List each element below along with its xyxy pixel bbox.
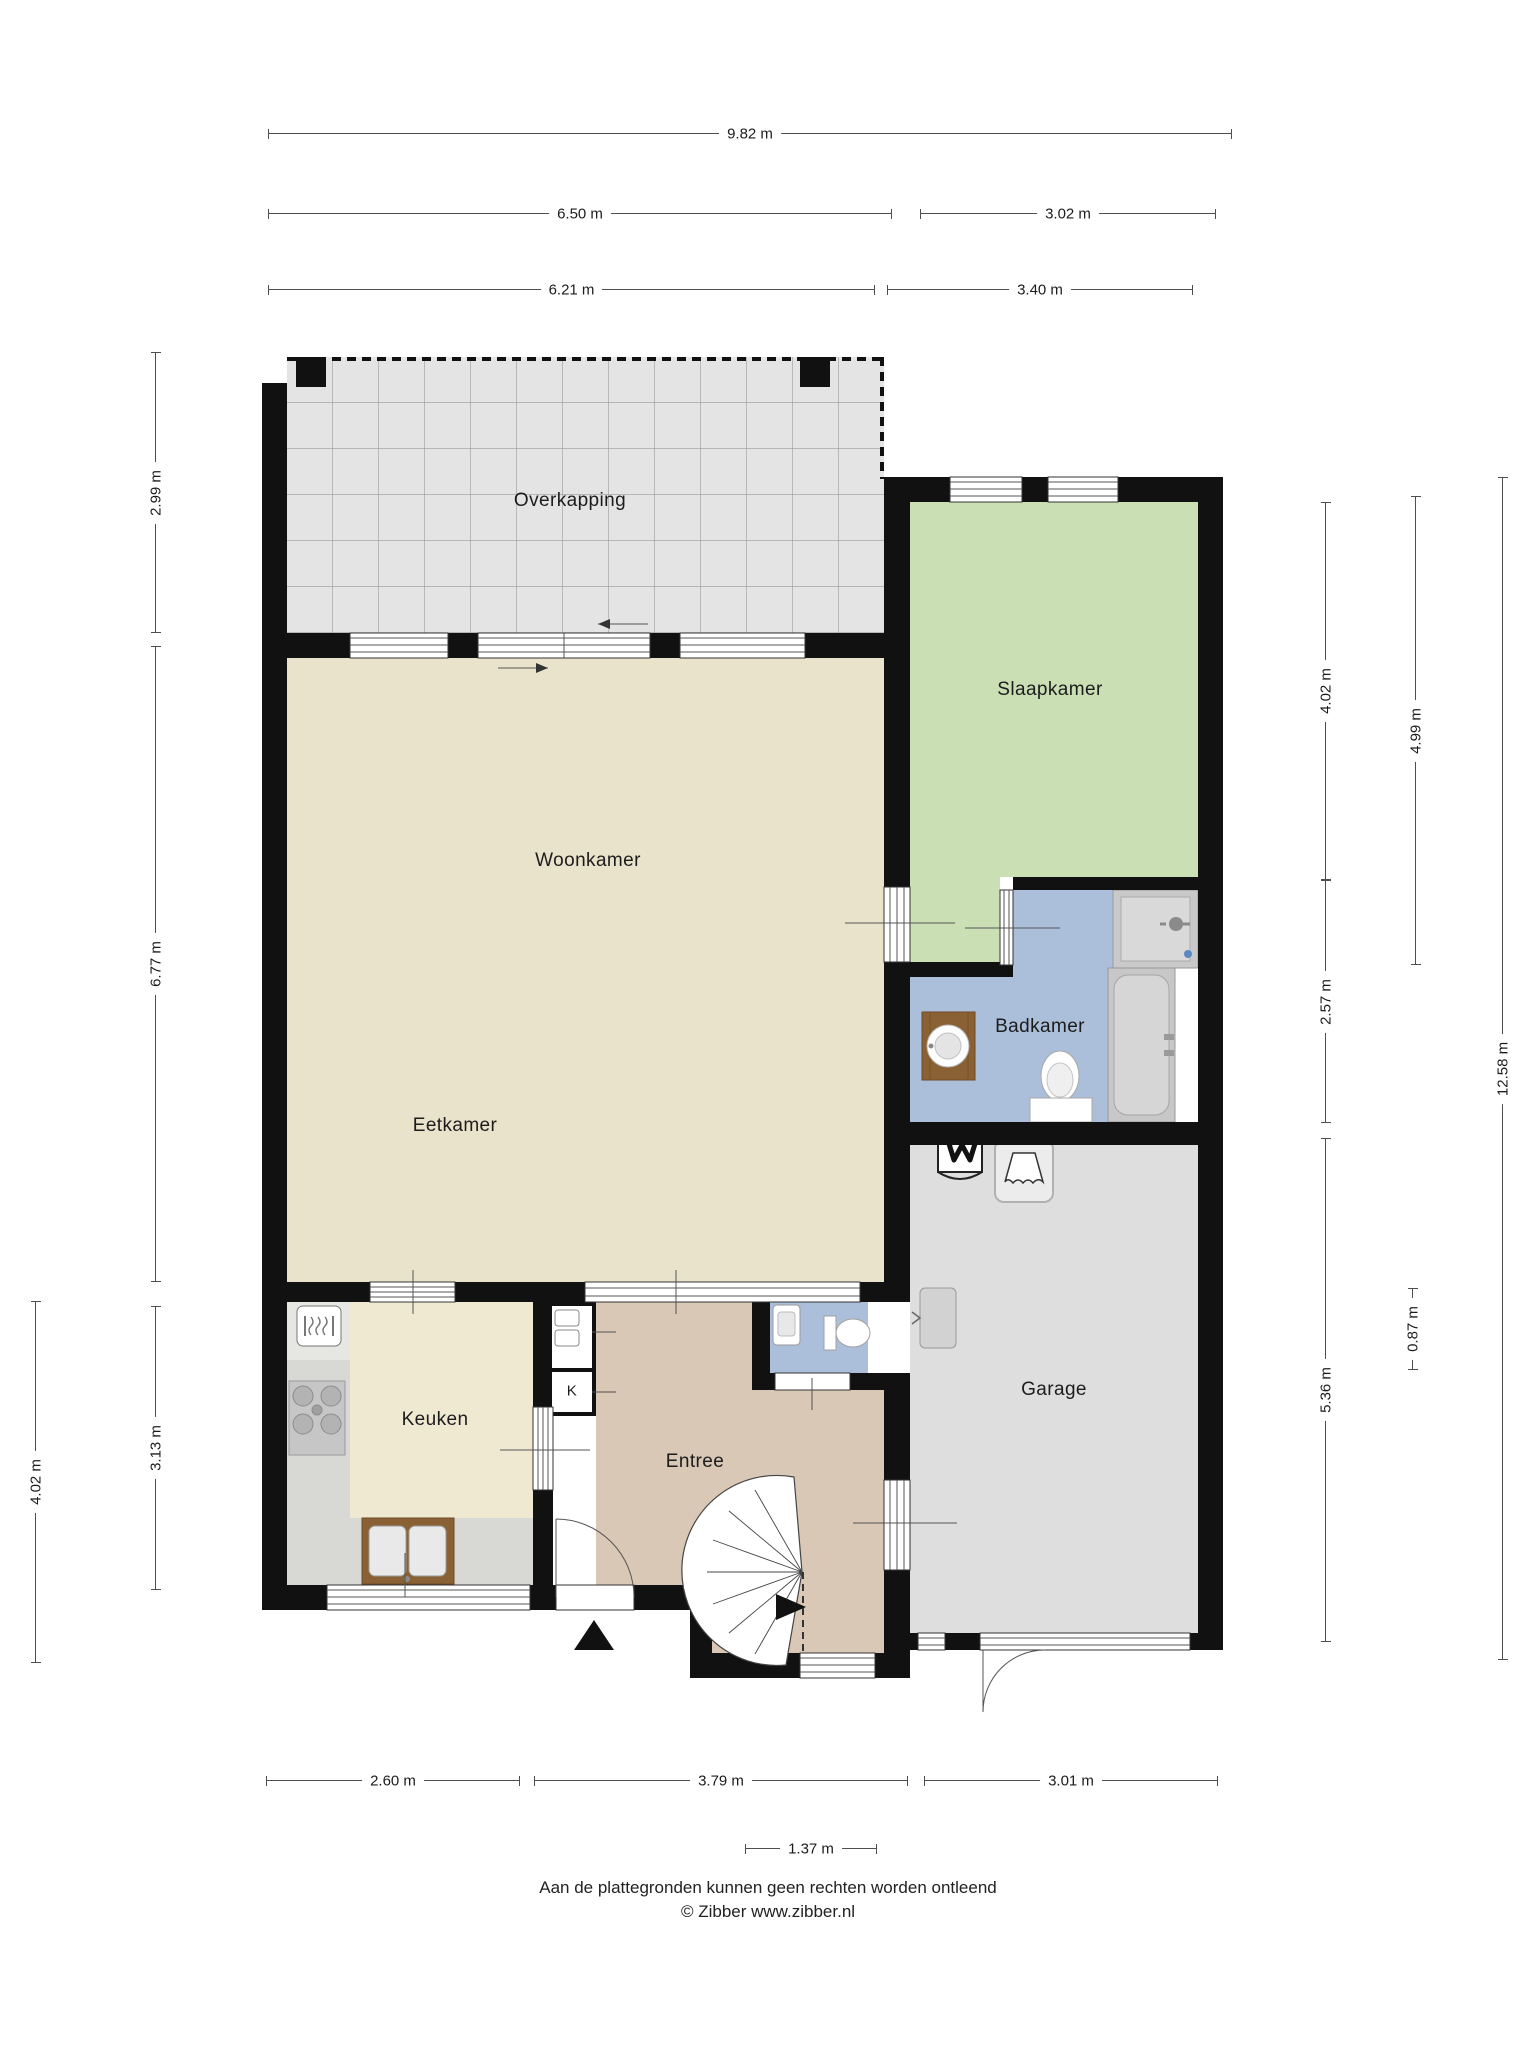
dim-width-right: 3.02 m [920, 213, 1216, 214]
dim-terrace-depth: 2.99 m [155, 352, 156, 633]
glazed-door [884, 887, 910, 962]
room-label-garage: Garage [1021, 1379, 1087, 1401]
window [350, 633, 448, 658]
room-label-keuken: Keuken [402, 1409, 469, 1431]
garage-pass-door-swing [983, 1650, 1045, 1712]
wc-door-strip [868, 1302, 884, 1373]
dim-small-right: 0.87 m [1412, 1288, 1413, 1370]
shower-mixer-icon [1169, 917, 1183, 931]
dim-living-depth: 6.77 m [155, 646, 156, 1282]
window [680, 633, 805, 658]
disclaimer-text: Aan de plattegronden kunnen geen rechten… [0, 1878, 1536, 1898]
bathroom-sink [922, 1012, 975, 1080]
entrance-triangle-icon [574, 1620, 614, 1650]
dim-terrace-width: 6.21 m [268, 289, 875, 290]
wc-toilet-icon [836, 1319, 870, 1347]
dim-bedroom-width: 3.40 m [887, 289, 1193, 290]
dim-total-width: 9.82 m [268, 133, 1232, 134]
interior-glazing [585, 1282, 860, 1302]
window [950, 477, 1022, 502]
window [327, 1585, 530, 1610]
dim-garage-width: 3.01 m [924, 1780, 1218, 1781]
dim-garage-depth: 5.36 m [1325, 1138, 1326, 1642]
glazed-door [533, 1407, 553, 1490]
terrace-post [800, 357, 830, 387]
credit-text: © Zibber www.zibber.nl [0, 1902, 1536, 1922]
room-label-badkamer: Badkamer [995, 1016, 1085, 1038]
oven-icon [297, 1306, 341, 1346]
slaapkamer-nook-floor [910, 877, 1000, 962]
room-label-entree: Entree [666, 1451, 724, 1473]
glazed-door [884, 1480, 910, 1570]
terrace-post [296, 357, 326, 387]
floor-plan-drawing [0, 0, 1536, 2048]
room-floors [287, 357, 1198, 1653]
dim-bedroom-total: 4.99 m [1415, 496, 1416, 965]
room-label-eetkamer: Eetkamer [413, 1115, 498, 1137]
garage-door [980, 1633, 1190, 1650]
room-label-overkapping: Overkapping [514, 490, 626, 512]
dim-width-left: 6.50 m [268, 213, 892, 214]
room-label-kast: K [567, 1383, 577, 1400]
dim-bay-width: 1.37 m [745, 1848, 877, 1849]
bath-tap-icon [1164, 1034, 1174, 1040]
window [918, 1633, 945, 1650]
dim-front-depth: 4.02 m [35, 1301, 36, 1663]
window [1048, 477, 1118, 502]
dim-entry-width: 3.79 m [534, 1780, 908, 1781]
dim-total-depth: 12.58 m [1502, 477, 1503, 1660]
window [800, 1653, 875, 1678]
shower [1113, 890, 1198, 968]
room-label-slaapkamer: Slaapkamer [997, 679, 1102, 701]
bath-tap-icon [1164, 1050, 1174, 1056]
front-door-opening [556, 1585, 634, 1610]
garage-side-door-leaf [920, 1288, 956, 1348]
floor-plan-page: Overkapping Woonkamer Eetkamer Slaapkame… [0, 0, 1536, 2048]
dim-kitchen-depth: 3.13 m [155, 1306, 156, 1590]
sliding-door [478, 633, 650, 658]
woonkamer-floor [287, 658, 884, 1282]
drain-icon [1184, 950, 1192, 958]
bath-side-strip [1175, 968, 1198, 1122]
room-label-woonkamer: Woonkamer [535, 850, 641, 872]
dim-bedroom-depth: 4.02 m [1325, 502, 1326, 880]
bathtub [1108, 968, 1175, 1122]
dim-kitchen-width: 2.60 m [266, 1780, 520, 1781]
dim-bathroom-depth: 2.57 m [1325, 880, 1326, 1123]
